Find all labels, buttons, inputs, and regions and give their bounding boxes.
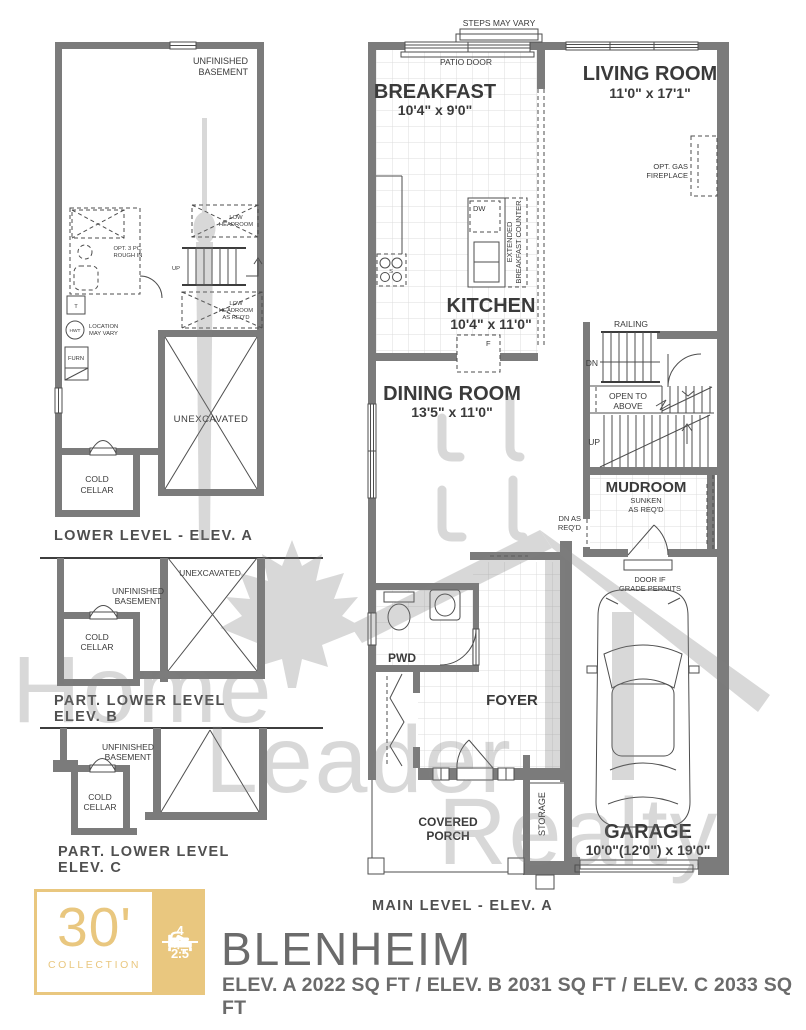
dining-label: DINING ROOM: [383, 383, 521, 405]
dining-dims: 13'5" x 11'0": [411, 404, 492, 420]
unfinished-2: BASEMENT: [198, 67, 248, 77]
lower-level-a-caption: LOWER LEVEL - ELEV. A: [54, 528, 253, 544]
part-lower-c-caption-2: ELEV. C: [58, 860, 122, 876]
cold-cellar-door-gap: [90, 765, 115, 772]
cold-cellar: COLD CELLAR: [80, 474, 113, 495]
cold-cellar-2: CELLAR: [80, 485, 113, 495]
basement-labels: UNFINISHED BASEMENT: [193, 56, 249, 77]
breakfast-dims: 10'4" x 9'0": [398, 102, 472, 118]
cold-cellar-2: CELLAR: [83, 802, 116, 812]
kitchen-label: KITCHEN: [447, 295, 536, 317]
up-label: UP: [588, 437, 600, 447]
low-headroom-reqd-1: LOW: [229, 301, 243, 307]
kitchen-dims: 10'4" x 11'0": [450, 316, 531, 332]
dn-as-reqd-2: REQ'D: [558, 523, 582, 532]
unfinished-1: UNFINISHED: [193, 56, 249, 66]
living-room: LIVING ROOM 11'0" x 17'1" OPT. GAS FIREP…: [583, 63, 717, 196]
garage-label: GARAGE: [604, 821, 692, 843]
living-room-window: [566, 42, 698, 50]
unexcavated-area: UNEXCAVATED: [165, 337, 257, 489]
lower-level-a-plan: UNFINISHED BASEMENT OPT. 3 PC. ROUGH IN …: [40, 30, 330, 550]
sqft-summary: ELEV. A 2022 SQ FT / ELEV. B 2031 SQ FT …: [222, 974, 806, 1020]
rough-in-2: ROUGH IN: [114, 253, 143, 259]
part-lower-b-plan: UNEXCAVATED UNFINISHED BASEMENT COLD CEL…: [40, 550, 330, 725]
stairs: RAILING DN OPEN TO ABOVE: [586, 319, 714, 467]
living-room-label: LIVING ROOM: [583, 63, 717, 85]
dining-room: DINING ROOM 13'5" x 11'0": [368, 383, 528, 556]
rough-in-1: OPT. 3 PC.: [114, 246, 143, 252]
walls: [55, 42, 264, 517]
furnace-label: FURN: [68, 356, 84, 362]
garage: GARAGE 10'0"(12'0") x 19'0": [575, 590, 710, 872]
extended-counter-2: BREAKFAST COUNTER: [514, 200, 523, 284]
covered-porch: COVERED PORCH: [368, 780, 524, 874]
cold-cellar-1: COLD: [88, 792, 112, 802]
unfinished-2: BASEMENT: [105, 752, 152, 762]
part-lower-c-caption-1: PART. LOWER LEVEL: [58, 844, 230, 860]
open-above-2: ABOVE: [613, 401, 643, 411]
door-grade-1: DOOR IF: [634, 575, 666, 584]
garage-dims: 10'0"(12'0") x 19'0": [586, 842, 711, 858]
main-level-caption: MAIN LEVEL - ELEV. A: [372, 898, 553, 914]
unexcavated-label: UNEXCAVATED: [179, 568, 241, 578]
shower-icon: [167, 930, 193, 954]
cold-cellar-1: COLD: [85, 632, 109, 642]
extended-counter-1: EXTENDED: [505, 221, 514, 262]
porch-label-1: COVERED: [418, 815, 478, 829]
mudroom-note-2: AS REQ'D: [628, 505, 664, 514]
pwd-label: PWD: [388, 651, 416, 665]
patio-door-label: PATIO DOOR: [440, 57, 492, 67]
unfinished-1: UNFINISHED: [102, 742, 154, 752]
door-grade-2: GRADE PERMITS: [619, 584, 681, 593]
steps-note: STEPS MAY VARY: [463, 18, 536, 28]
low-headroom-reqd-3: AS REQ'D: [222, 315, 249, 321]
low-headroom-1: LOW: [229, 215, 243, 221]
part-lower-c-plan: UNFINISHED BASEMENT COLD CELLAR PART. LO…: [40, 722, 330, 880]
hwt-label: HWT: [70, 328, 81, 334]
part-lower-b-caption-1: PART. LOWER LEVEL: [54, 693, 226, 709]
dishwasher-label: DW: [473, 204, 486, 213]
cold-cellar-1: COLD: [85, 474, 109, 484]
dn-as-reqd-1: DN AS: [558, 514, 581, 523]
mudroom-label: MUDROOM: [606, 479, 687, 496]
foyer-label: FOYER: [486, 692, 538, 709]
stove-label: S: [389, 269, 393, 275]
opt-bath-rough-in: OPT. 3 PC. ROUGH IN: [70, 208, 162, 298]
floorplan-sheet: STEPS MAY VARY PATIO DOOR BREAKFAST 10'4…: [0, 0, 806, 1030]
collection-logo: 30' COLLECTION: [34, 889, 155, 995]
open-above-1: OPEN TO: [609, 391, 647, 401]
living-room-dims: 11'0" x 17'1": [609, 85, 690, 101]
dn-label: DN: [586, 358, 598, 368]
fireplace-label-2: FIREPLACE: [646, 171, 688, 180]
cold-cellar-2: CELLAR: [80, 642, 113, 652]
up-label: UP: [172, 266, 180, 272]
unfinished-1: UNFINISHED: [112, 586, 164, 596]
car-outline: [587, 590, 699, 827]
tank-label: T: [74, 304, 78, 310]
mudroom-note-1: SUNKEN: [630, 496, 661, 505]
unfinished-2: BASEMENT: [115, 596, 162, 606]
stairwell: LOW HEADROOM UP LOW HEADROOM AS REQ'D: [172, 205, 262, 328]
mechanical: T HWT LOCATION MAY VARY FURN: [65, 296, 118, 380]
walls: [53, 728, 267, 835]
unexcavated-label: UNEXCAVATED: [174, 414, 249, 425]
hwt-note-1: LOCATION: [89, 324, 118, 330]
storage-label: STORAGE: [537, 792, 547, 836]
fireplace-label-1: OPT. GAS: [653, 162, 688, 171]
porch-label-2: PORCH: [426, 829, 469, 843]
railing-label: RAILING: [614, 319, 648, 329]
breakfast-label: BREAKFAST: [374, 81, 496, 103]
low-headroom-2: HEADROOM: [219, 222, 253, 228]
bed-bath-panel: 4 2.5: [155, 889, 205, 995]
collection-number: 30': [37, 898, 152, 956]
main-level-plan: STEPS MAY VARY PATIO DOOR BREAKFAST 10'4…: [360, 14, 740, 914]
collection-label: COLLECTION: [37, 959, 152, 971]
cold-cellar-door-gap: [90, 612, 117, 619]
model-name: BLENHEIM: [221, 922, 472, 976]
hwt-note-2: MAY VARY: [89, 331, 118, 337]
low-headroom-reqd-2: HEADROOM: [219, 308, 253, 314]
fridge-label: F: [486, 339, 491, 348]
